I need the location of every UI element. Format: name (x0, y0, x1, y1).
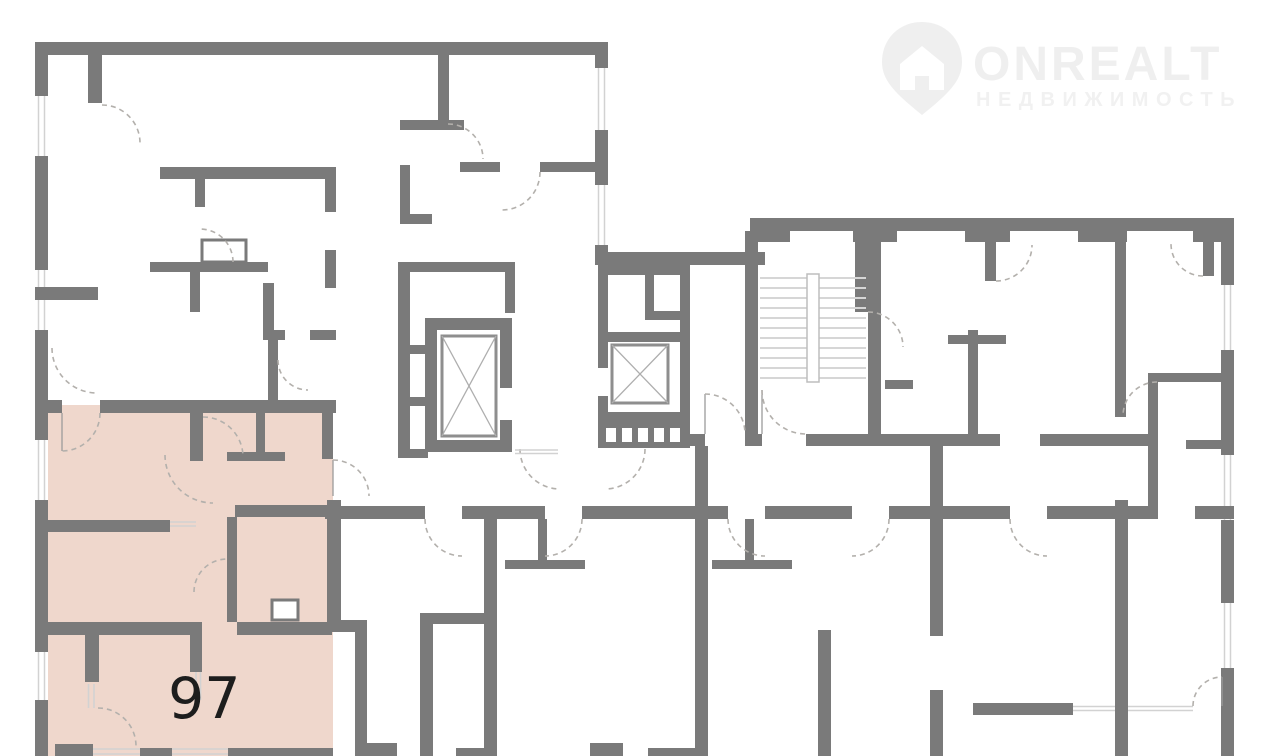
unit-number-label: 97 (168, 666, 241, 732)
staircase (760, 274, 866, 382)
elevator-2 (612, 345, 668, 403)
floor-plan-image: 97 ONREALT НЕДВИЖИМОСТЬ (0, 0, 1280, 756)
watermark-subtitle: НЕДВИЖИМОСТЬ (976, 89, 1242, 111)
elevator-1 (442, 336, 496, 436)
floor-plan-page: 97 ONREALT НЕДВИЖИМОСТЬ (0, 0, 1280, 756)
watermark-logo: ONREALT НЕДВИЖИМОСТЬ (882, 22, 1242, 115)
vanity-fixture (202, 240, 246, 262)
watermark-brand: ONREALT (973, 38, 1222, 91)
stair-stringer (807, 274, 819, 382)
washer-fixture (272, 600, 298, 620)
house-pin-icon (882, 22, 962, 115)
